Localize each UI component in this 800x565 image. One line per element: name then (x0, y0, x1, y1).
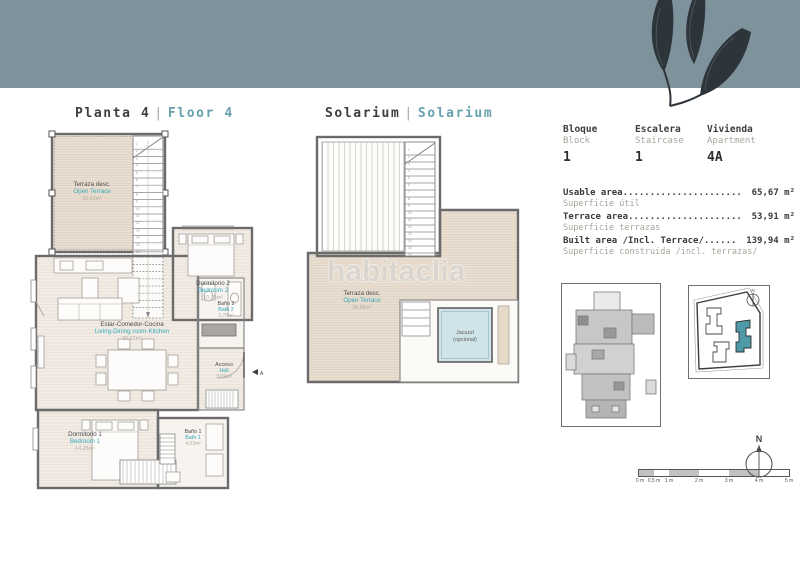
svg-text:4: 4 (136, 164, 138, 168)
scale-label: 0 m (636, 478, 644, 484)
scale-label: 0,5 m (648, 478, 661, 484)
svg-text:8: 8 (408, 197, 410, 201)
svg-text:Dormitorio 2: Dormitorio 2 (196, 280, 230, 287)
staircase-info: Escalera Staircase 1 (635, 124, 707, 165)
svg-text:Terraza desc.: Terraza desc. (73, 181, 110, 188)
floorplan-sheet: Planta 4|Floor 4 Solarium|Solarium (0, 0, 800, 565)
staircase-value: 1 (635, 150, 707, 165)
scale-label: 5 m (785, 478, 793, 484)
scale-label: 1 m (665, 478, 673, 484)
title-separator: | (400, 106, 417, 121)
title-floor4-es: Planta 4 (75, 106, 150, 121)
terrace-area-sub: Superficie terrazas (563, 223, 795, 234)
bath1-label: Baño 1 Bath 1 4,03m² (184, 429, 201, 447)
terrace-area-row: Terrace area.....................53,91 m… (563, 212, 795, 223)
svg-text:9: 9 (136, 200, 138, 204)
svg-text:10: 10 (136, 207, 140, 211)
svg-text:8: 8 (136, 192, 138, 196)
svg-text:36,98m²: 36,98m² (352, 305, 372, 311)
scale-label: 2 m (695, 478, 703, 484)
svg-text:3,70m²: 3,70m² (218, 313, 234, 319)
svg-text:16,93m²: 16,93m² (82, 196, 102, 202)
bath2-label: Baño 2 Bath 2 3,70m² (217, 301, 234, 319)
svg-text:12: 12 (408, 225, 412, 229)
svg-text:13: 13 (136, 228, 140, 232)
terrace-steps-icon (402, 302, 430, 336)
svg-text:6: 6 (408, 183, 410, 187)
tv-unit-icon (38, 336, 44, 368)
svg-text:30,62m²: 30,62m² (122, 336, 142, 342)
svg-text:15: 15 (136, 243, 140, 247)
svg-text:7: 7 (136, 185, 138, 189)
svg-text:12: 12 (136, 221, 140, 225)
area-summary: Usable area......................65,67 m… (563, 188, 795, 260)
title-floor4: Planta 4|Floor 4 (75, 106, 234, 121)
svg-text:14,25m²: 14,25m² (75, 446, 95, 452)
sofa-icon (58, 298, 122, 320)
block-label-es: Bloque (563, 124, 635, 135)
title-solarium-es: Solarium (325, 106, 400, 121)
svg-text:1: 1 (136, 142, 138, 146)
title-floor4-en: Floor 4 (168, 106, 234, 121)
section-marker-a: A (252, 369, 264, 377)
dots-leader: ..................... (628, 212, 742, 223)
usable-area-label: Usable area (563, 188, 623, 199)
usable-area-row: Usable area......................65,67 m… (563, 188, 795, 199)
closet-icon (206, 390, 238, 408)
svg-text:11: 11 (136, 214, 140, 218)
bed-icon (179, 234, 243, 276)
unit-info: Bloque Block 1 Escalera Staircase 1 Vivi… (563, 124, 793, 165)
apartment-info: Vivienda Apartment 4A (707, 124, 779, 165)
title-solarium: Solarium|Solarium (325, 106, 493, 121)
habitaclia-watermark: habitaclia (327, 255, 477, 289)
built-area-label: Built area /Incl. Terrace/ (563, 236, 704, 247)
building-key-plan (561, 283, 661, 427)
svg-text:Living-Dining room-Kitchen: Living-Dining room-Kitchen (95, 328, 170, 335)
site-plan: N (688, 285, 770, 379)
svg-text:7: 7 (408, 190, 410, 194)
dots-leader: ...... (704, 236, 737, 247)
svg-text:Open Terrace: Open Terrace (343, 297, 381, 304)
solarium-stairs: 12345678910111213141516 (405, 142, 435, 257)
svg-text:Terraza desc.: Terraza desc. (343, 290, 380, 297)
apartment-label-es: Vivienda (707, 124, 779, 135)
svg-text:14: 14 (136, 236, 140, 240)
svg-text:Open Terrace: Open Terrace (73, 188, 111, 195)
svg-text:14: 14 (408, 239, 412, 243)
title-solarium-en: Solarium (418, 106, 493, 121)
jacuzzi-label: Jacuzzi (456, 330, 474, 336)
terrace-area-label: Terrace area (563, 212, 628, 223)
block-value: 1 (563, 150, 635, 165)
leaf-illustration-icon (610, 0, 790, 110)
built-area-value: 139,94 m² (743, 236, 795, 247)
svg-text:3,02m²: 3,02m² (216, 374, 232, 380)
svg-text:16: 16 (136, 250, 140, 254)
north-compass-icon: N (733, 433, 785, 479)
svg-text:11: 11 (408, 218, 412, 222)
svg-text:2: 2 (136, 149, 138, 153)
bench-strip (498, 306, 509, 364)
svg-text:3: 3 (136, 156, 138, 160)
svg-text:5: 5 (408, 176, 410, 180)
jacuzzi: Jacuzzi (opcional) (438, 308, 492, 362)
block-label-en: Block (563, 136, 635, 146)
svg-text:1: 1 (408, 148, 410, 152)
title-separator: | (150, 106, 167, 121)
built-area-row: Built area /Incl. Terrace/ ......139,94 … (563, 236, 795, 247)
jacuzzi-label: (opcional) (453, 337, 477, 343)
svg-text:10: 10 (408, 211, 412, 215)
svg-text:A: A (260, 371, 264, 377)
usable-area-sub: Superficie útil (563, 199, 795, 210)
staircase-label-es: Escalera (635, 124, 707, 135)
built-area-sub: Superficie construida /incl. terrazas/ (563, 247, 795, 258)
terrace-area-value: 53,91 m² (749, 212, 795, 223)
block-info: Bloque Block 1 (563, 124, 635, 165)
svg-text:N: N (751, 288, 754, 293)
apartment-value: 4A (707, 150, 779, 165)
svg-text:4,03m²: 4,03m² (185, 441, 201, 447)
svg-text:9: 9 (408, 204, 410, 208)
svg-text:4: 4 (408, 169, 410, 173)
usable-area-value: 65,67 m² (749, 188, 795, 199)
svg-text:15: 15 (408, 246, 412, 250)
svg-text:3: 3 (408, 162, 410, 166)
svg-text:Bedroom 1: Bedroom 1 (70, 438, 101, 445)
svg-text:5: 5 (136, 171, 138, 175)
svg-text:Dormitorio 1: Dormitorio 1 (68, 431, 102, 438)
svg-text:13: 13 (408, 232, 412, 236)
svg-text:Estar-Comedor-Cocina: Estar-Comedor-Cocina (100, 321, 164, 328)
svg-text:Bedroom 2: Bedroom 2 (198, 287, 229, 294)
floor4-plan: 12345678910111213141516 (30, 128, 270, 493)
scale-label: 3 m (725, 478, 733, 484)
dots-leader: ...................... (623, 188, 742, 199)
svg-text:N: N (756, 434, 763, 444)
staircase-label-en: Staircase (635, 136, 707, 146)
apartment-label-en: Apartment (707, 136, 779, 146)
svg-text:6: 6 (136, 178, 138, 182)
svg-text:2: 2 (408, 155, 410, 159)
